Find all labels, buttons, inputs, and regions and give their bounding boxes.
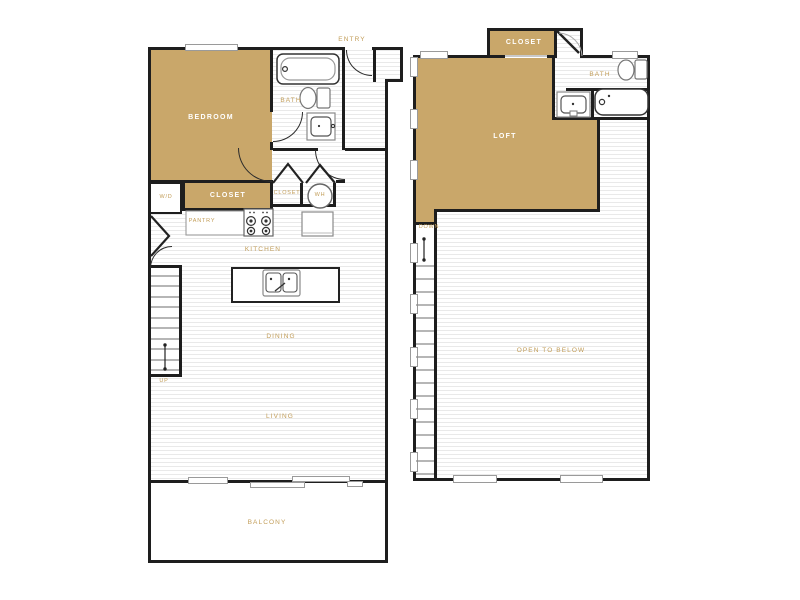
fixtures-layer: [0, 0, 800, 600]
stairs-label-up: UP: [149, 379, 179, 385]
window-marker: [560, 475, 603, 483]
room-label-closet: CLOSET: [193, 192, 263, 199]
window-marker: [410, 57, 418, 77]
window-marker: [410, 160, 418, 180]
wall-segment: [179, 265, 182, 377]
closet-opening-marker: [505, 55, 547, 57]
window-marker: [420, 51, 448, 59]
wall-segment: [552, 117, 650, 120]
wall-segment: [373, 50, 376, 82]
wall-segment: [273, 148, 318, 151]
wall-segment: [372, 47, 403, 50]
room-label-loft-closet: CLOSET: [489, 39, 559, 46]
stairwell-floor1: [151, 268, 179, 378]
wall-segment: [490, 55, 505, 58]
wall-segment: [270, 204, 336, 207]
window-marker: [410, 109, 418, 129]
room-label-balcony: BALCONY: [232, 520, 302, 527]
window-marker: [410, 347, 418, 367]
sliding-door-panel: [250, 482, 305, 488]
wall-segment: [580, 28, 583, 58]
sliding-door-panel: [347, 481, 363, 487]
room-label-bath: BATH: [266, 98, 316, 105]
wall-segment: [591, 88, 594, 120]
wall-segment: [148, 560, 388, 563]
room-label-dining: DINING: [251, 334, 311, 341]
wall-segment: [148, 47, 345, 50]
wall-segment: [487, 28, 583, 31]
floor1-foyer-floor-texture: [345, 82, 388, 148]
wall-segment: [434, 209, 437, 481]
room-label-loft: LOFT: [475, 133, 535, 140]
stairwell-floor2: [416, 225, 434, 478]
stairs-label-down: DOWN: [413, 225, 445, 231]
window-marker: [612, 51, 638, 59]
wall-segment: [345, 148, 388, 151]
wall-segment: [336, 180, 345, 183]
wall-segment: [566, 88, 647, 91]
room-label-loft-bath: BATH: [575, 72, 625, 79]
floor2-bath-entry-texture: [557, 31, 580, 55]
window-marker: [410, 294, 418, 314]
room-label-water-heater: WH: [305, 193, 335, 199]
room-label-kitchen: KITCHEN: [233, 247, 293, 254]
sliding-door-panel: [292, 476, 350, 482]
window-marker: [410, 399, 418, 419]
wall-segment: [182, 208, 273, 211]
window-marker: [410, 243, 418, 263]
wall-segment: [437, 209, 600, 212]
room-label-living: LIVING: [250, 414, 310, 421]
room-label-bedroom: BEDROOM: [171, 114, 251, 121]
wall-segment: [148, 47, 151, 563]
wall-segment: [597, 120, 600, 212]
window-marker: [453, 475, 497, 483]
room-label-washer-dryer: W/D: [146, 195, 186, 201]
wall-segment: [552, 58, 555, 120]
room-label-open-to-below: OPEN TO BELOW: [491, 348, 611, 355]
window-marker: [410, 452, 418, 472]
wall-segment: [151, 374, 182, 377]
wall-segment: [400, 47, 403, 82]
window-marker: [188, 477, 228, 484]
wall-segment: [413, 478, 650, 481]
wall-segment: [342, 47, 345, 150]
window-marker: [185, 44, 238, 51]
wall-segment: [385, 79, 388, 563]
room-label-pantry: PANTRY: [177, 219, 227, 225]
floorplan-canvas: ENTRY BEDROOM BATH CLOSET W/D PANTRY CLO…: [0, 0, 800, 600]
room-label-entry: ENTRY: [332, 37, 372, 44]
